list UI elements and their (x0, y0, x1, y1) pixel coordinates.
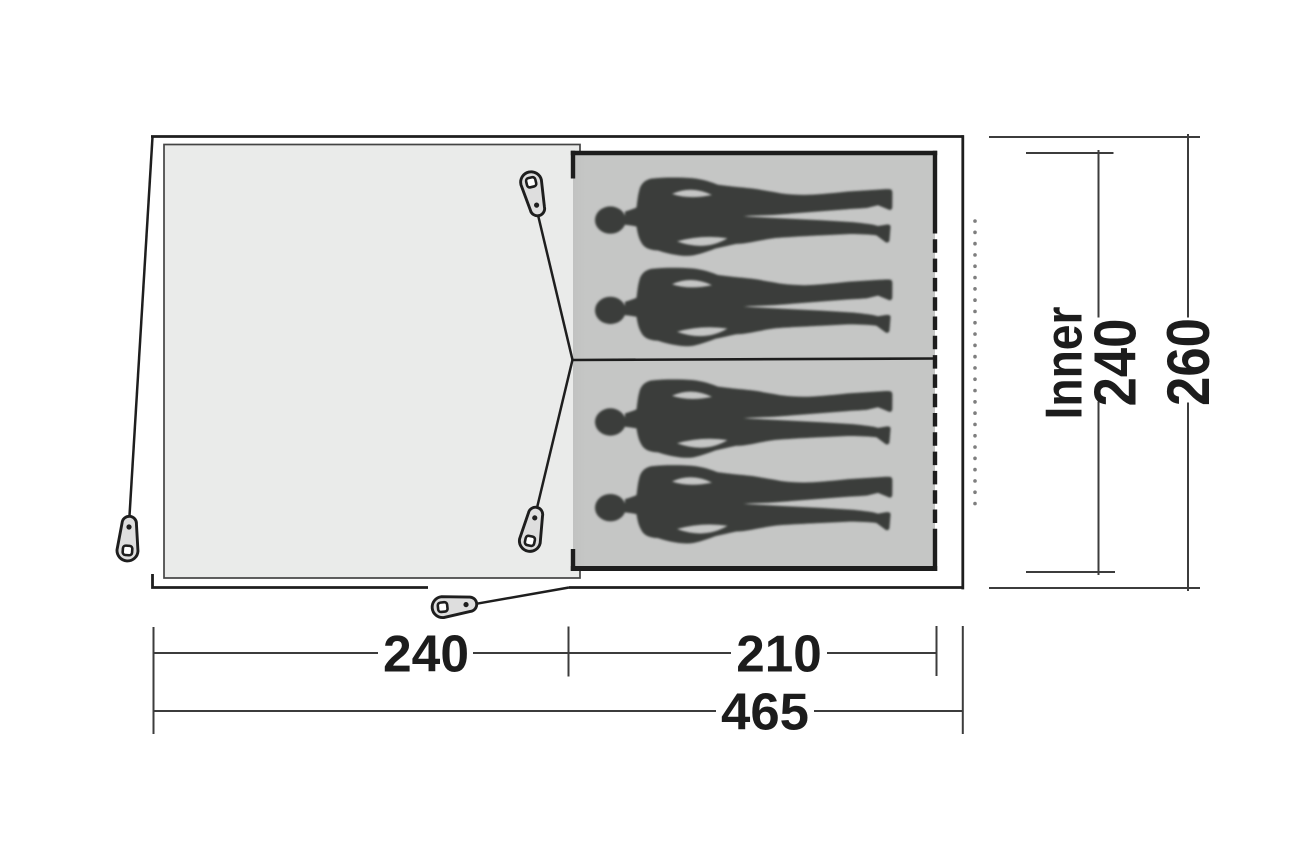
svg-text:210: 210 (736, 626, 822, 684)
svg-text:260: 260 (1155, 318, 1222, 406)
svg-text:240: 240 (1083, 319, 1149, 407)
svg-text:240: 240 (383, 626, 469, 684)
svg-text:465: 465 (721, 684, 809, 742)
